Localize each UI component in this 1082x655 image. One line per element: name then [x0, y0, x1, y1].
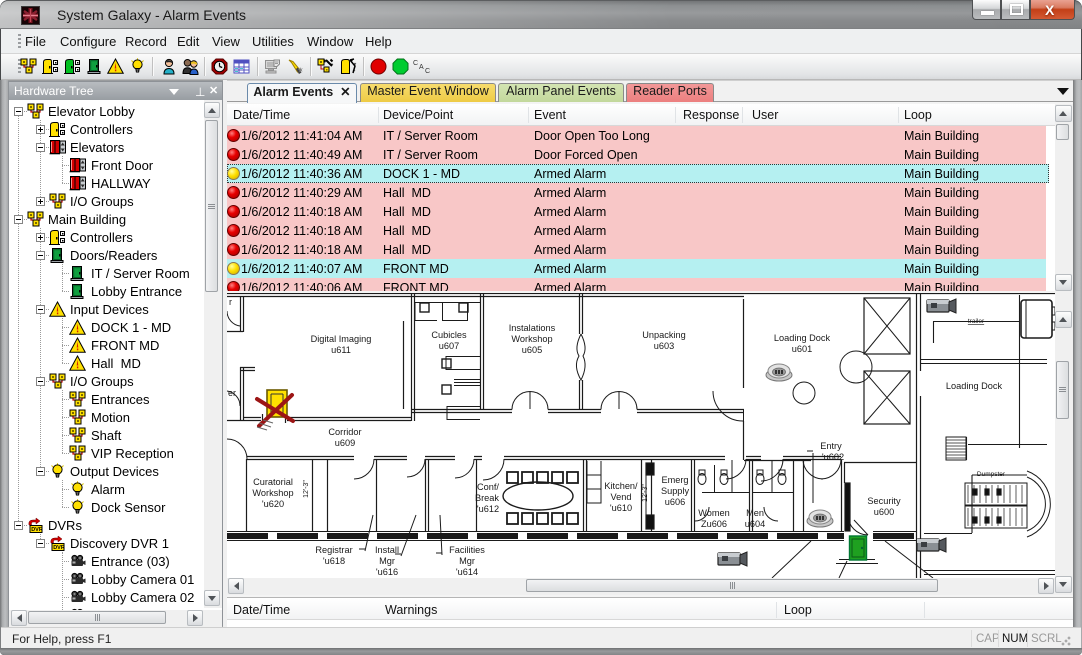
svg-text:12'-3": 12'-3" [642, 484, 649, 502]
svg-text:er: er [228, 388, 236, 398]
svg-text:Corridor: Corridor [328, 427, 361, 437]
svg-text:Mgr: Mgr [459, 556, 475, 566]
svg-text:u607: u607 [439, 341, 459, 351]
svg-text:Zu606: Zu606 [701, 519, 727, 529]
svg-text:u609: u609 [335, 438, 355, 448]
svg-text:Workshop: Workshop [252, 488, 293, 498]
svg-text:12'-3": 12'-3" [303, 480, 310, 498]
svg-text:u611: u611 [331, 345, 351, 355]
svg-text:Workshop: Workshop [511, 334, 552, 344]
svg-text:Emerg: Emerg [661, 475, 688, 485]
svg-text:Unpacking: Unpacking [642, 330, 685, 340]
svg-text:u604: u604 [745, 519, 765, 529]
svg-text:u600: u600 [874, 507, 894, 517]
svg-text:Supply: Supply [661, 486, 689, 496]
svg-text:Entry: Entry [820, 441, 842, 451]
svg-text:u606: u606 [665, 497, 685, 507]
svg-text:Conf/: Conf/ [477, 482, 499, 492]
svg-text:Loading Dock: Loading Dock [774, 333, 831, 343]
svg-text:Dumpster: Dumpster [977, 471, 1006, 478]
svg-text:'u614: 'u614 [456, 567, 478, 577]
svg-text:u603: u603 [654, 341, 674, 351]
svg-text:Vend: Vend [611, 492, 632, 502]
svg-text:'u616: 'u616 [376, 567, 398, 577]
svg-text:Curatorial: Curatorial [253, 477, 293, 487]
svg-text:'u602: 'u602 [822, 452, 844, 462]
svg-text:'u612: 'u612 [477, 504, 499, 514]
svg-text:Break: Break [475, 493, 499, 503]
svg-text:'u618: 'u618 [323, 556, 345, 566]
svg-text:Instalations: Instalations [509, 323, 556, 333]
svg-text:Facilities: Facilities [449, 545, 485, 555]
svg-text:Mgr: Mgr [379, 556, 395, 566]
svg-text:u605: u605 [522, 345, 542, 355]
svg-text:r: r [229, 297, 232, 307]
svg-text:trailer: trailer [968, 318, 985, 325]
svg-text:Install: Install [375, 545, 399, 555]
svg-text:Digital Imaging: Digital Imaging [311, 334, 372, 344]
svg-text:Loading Dock: Loading Dock [946, 381, 1003, 391]
svg-text:'u620: 'u620 [262, 499, 284, 509]
svg-text:'u610: 'u610 [610, 503, 632, 513]
svg-text:Kitchen/: Kitchen/ [604, 481, 638, 491]
svg-text:u601: u601 [792, 344, 812, 354]
svg-text:Security: Security [867, 496, 901, 506]
svg-text:Registrar: Registrar [315, 545, 352, 555]
svg-text:Women: Women [698, 508, 730, 518]
svg-text:Cubicles: Cubicles [431, 330, 467, 340]
svg-text:Men: Men [746, 508, 764, 518]
